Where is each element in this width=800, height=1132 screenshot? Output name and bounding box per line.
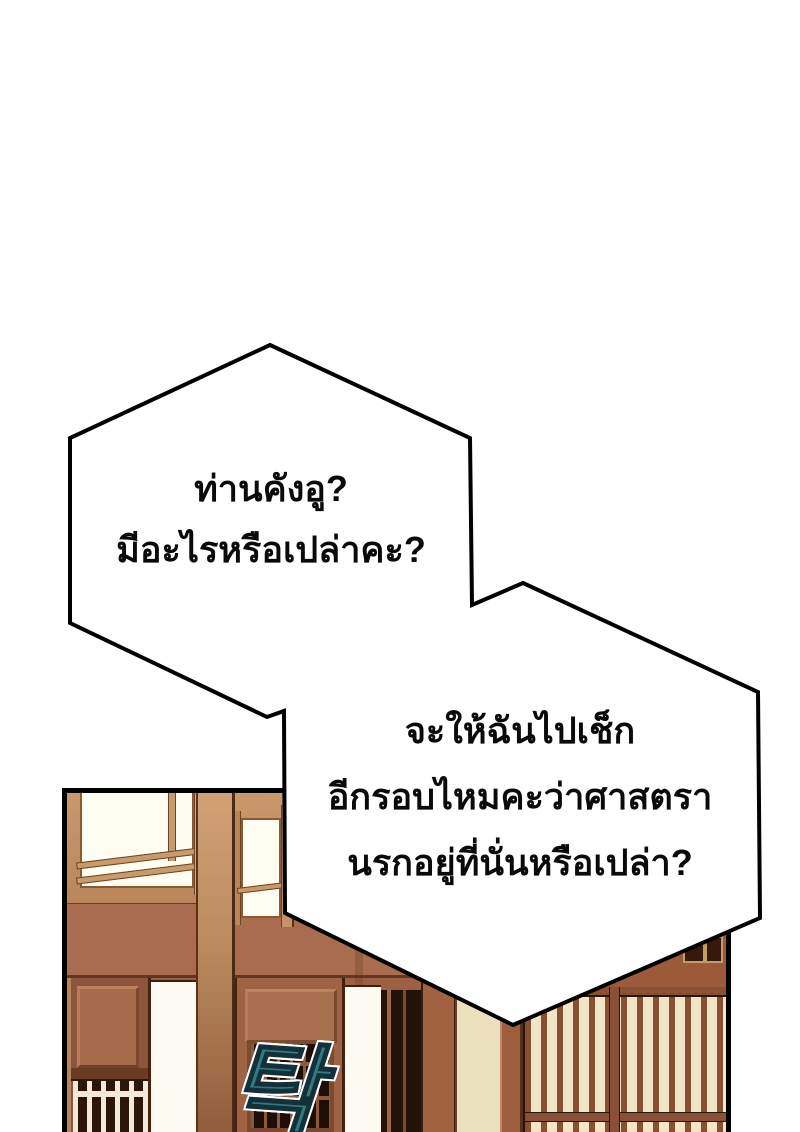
speech-bubble-outline <box>70 345 760 1025</box>
speech-bubble-1-text: ท่านคังอู? มีอะไรหรือเปล่าคะ? <box>70 458 472 580</box>
bubble-1-line-1: ท่านคังอู? <box>70 458 472 519</box>
speech-bubble-2-text: จะให้ฉันไปเช็ก อีกรอบไหมคะว่าศาสตรา นรกอ… <box>287 698 753 896</box>
bubble-1-line-2: มีอะไรหรือเปล่าคะ? <box>70 519 472 580</box>
bubble-2-line-2: อีกรอบไหมคะว่าศาสตรา <box>287 764 753 830</box>
bubble-2-line-3: นรกอยู่ที่นั่นหรือเปล่า? <box>287 830 753 896</box>
bubble-2-line-1: จะให้ฉันไปเช็ก <box>287 698 753 764</box>
comic-page: { "speech_bubbles": [ { "lines": ["ท่านค… <box>0 0 800 1132</box>
